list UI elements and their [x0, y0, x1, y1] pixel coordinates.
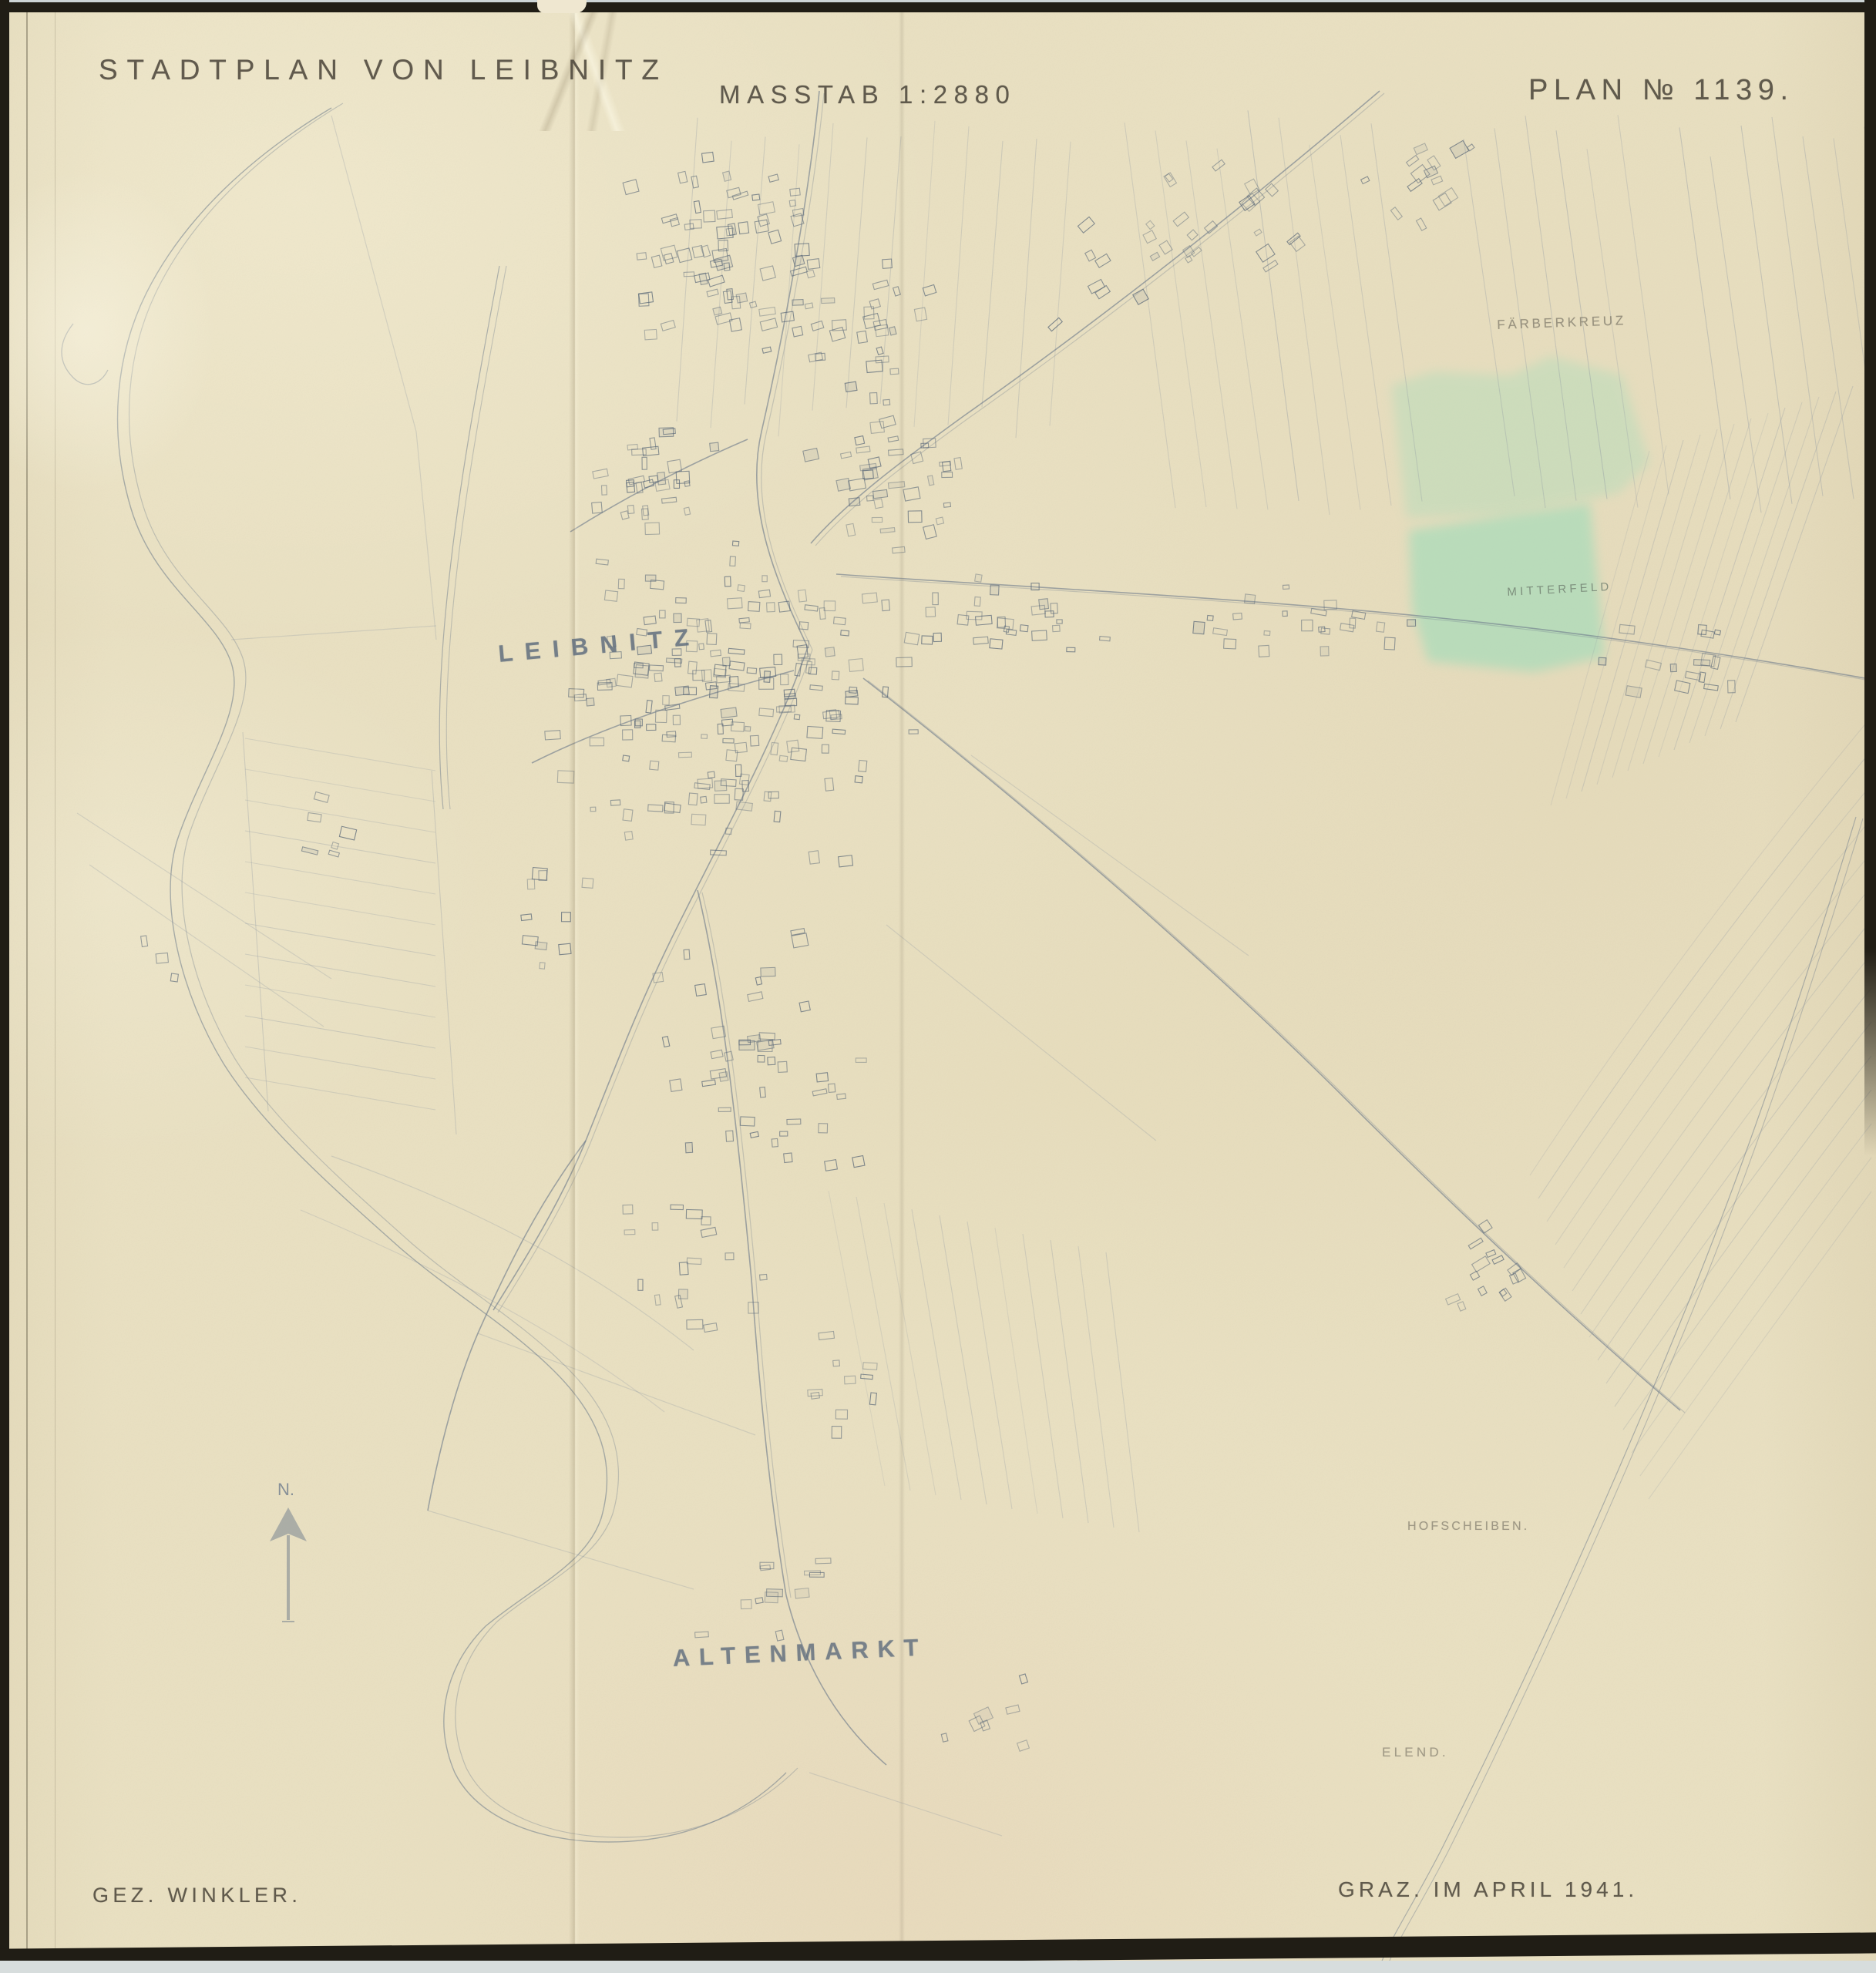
scan-strip-bottom	[0, 1961, 1876, 1973]
hofscheiben-label: HOFSCHEIBEN.	[1407, 1520, 1529, 1534]
plan-number: PLAN № 1139.	[1528, 74, 1794, 107]
map-sheet: STADTPLAN VON LEIBNITZ MASSTAB 1:2880 PL…	[0, 0, 1876, 1973]
drawn-by-credit: GEZ. WINKLER.	[92, 1884, 301, 1907]
north-letter: N.	[277, 1480, 294, 1500]
border-top-tear	[537, 0, 587, 13]
map-drawing	[0, 0, 1876, 1973]
border-right	[1864, 0, 1876, 1156]
border-left	[0, 0, 9, 1961]
place-date-credit: GRAZ. IM APRIL 1941.	[1338, 1877, 1638, 1902]
page-title: STADTPLAN VON LEIBNITZ	[99, 54, 668, 86]
border-top	[0, 2, 1876, 12]
elend-label: ELEND.	[1382, 1745, 1449, 1760]
paper-grain-texture	[0, 0, 1876, 1973]
scale-label: MASSTAB 1:2880	[719, 80, 1016, 109]
